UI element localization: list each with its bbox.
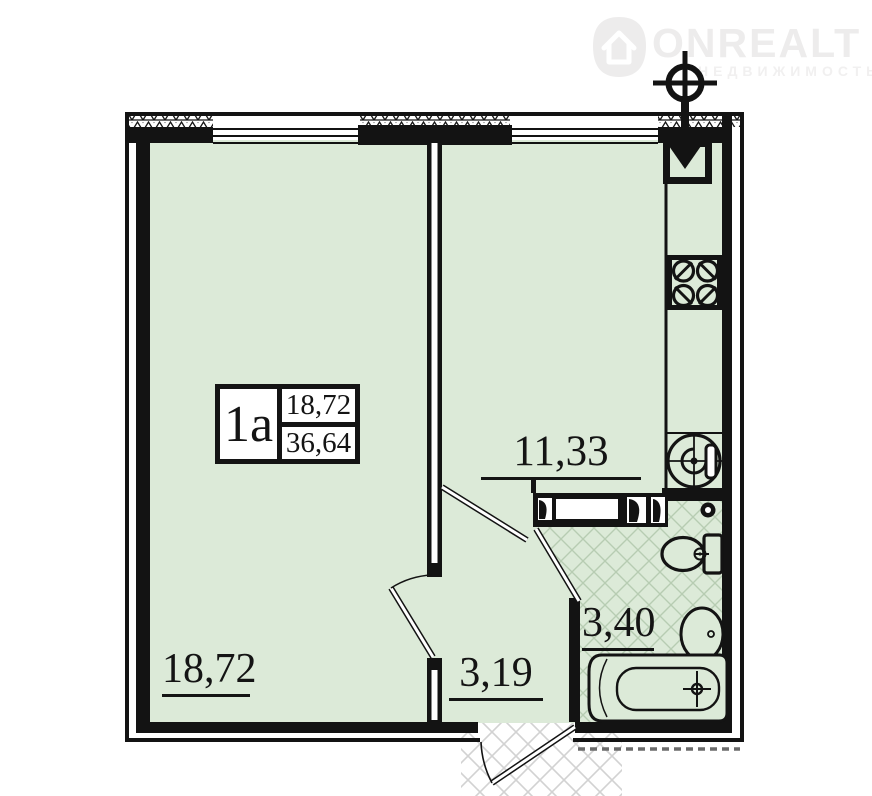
unit-total-area-value: 36,64 (282, 427, 355, 460)
bathroom-area-label: 3,40 (582, 602, 654, 651)
floor-plan-drawing (0, 0, 872, 796)
unit-type-label: 1а (220, 389, 282, 459)
bathtub-icon (589, 655, 727, 721)
unit-info-box: 1а 18,72 36,64 (215, 384, 360, 464)
crosshair-icon (653, 51, 717, 115)
unit-living-area-value: 18,72 (282, 389, 355, 427)
pipe-riser-icon (701, 503, 716, 518)
hall-area-label: 3,19 (449, 652, 543, 701)
toilet-icon (662, 535, 722, 573)
kitchen-area-label: 11,33 (481, 430, 641, 480)
washbasin-icon (681, 608, 723, 660)
hall-cabinet (533, 493, 668, 527)
living-room-area-label: 18,72 (162, 648, 250, 697)
floor-plan-page: ONREALT НЕДВИЖИМОСТЬ (0, 0, 872, 796)
outside-corridor-hatch (461, 723, 622, 796)
